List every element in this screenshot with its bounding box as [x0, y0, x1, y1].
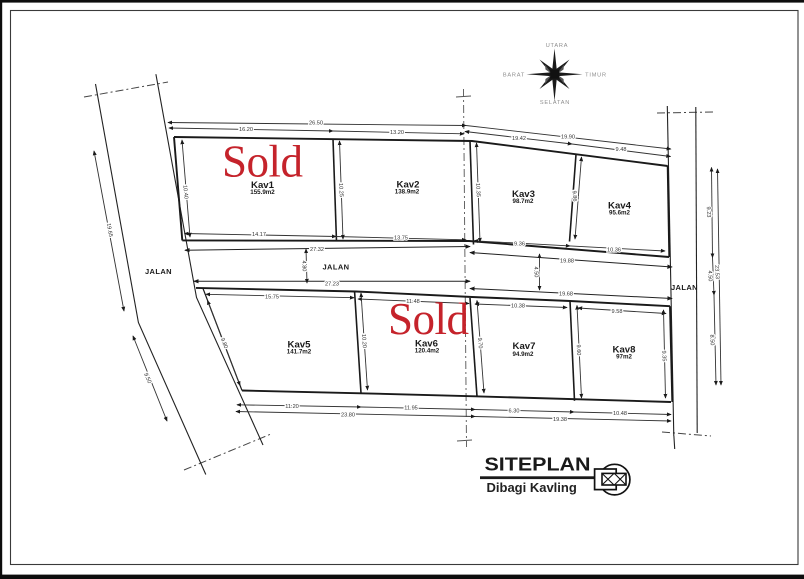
- svg-text:19.38: 19.38: [553, 417, 567, 423]
- svg-text:9.23: 9.23: [705, 206, 712, 217]
- svg-text:JALAN: JALAN: [322, 263, 349, 272]
- svg-text:9.36: 9.36: [514, 242, 525, 248]
- svg-text:120.4m2: 120.4m2: [415, 348, 440, 355]
- svg-text:9.35: 9.35: [660, 350, 666, 361]
- svg-text:10.48: 10.48: [613, 411, 627, 417]
- svg-text:13.20: 13.20: [390, 130, 404, 136]
- svg-text:19.88: 19.88: [560, 259, 574, 265]
- svg-text:141.7m2: 141.7m2: [287, 349, 312, 356]
- svg-text:10.25: 10.25: [337, 183, 344, 197]
- svg-text:Sold: Sold: [388, 294, 469, 344]
- svg-text:10.20: 10.20: [360, 334, 367, 348]
- svg-text:BARAT: BARAT: [503, 73, 525, 79]
- svg-text:4.50: 4.50: [532, 266, 539, 277]
- svg-text:9.60: 9.60: [575, 344, 582, 355]
- svg-text:JALAN: JALAN: [671, 283, 698, 292]
- svg-text:27.32: 27.32: [310, 247, 324, 253]
- svg-text:UTARA: UTARA: [546, 43, 569, 49]
- svg-text:9.70: 9.70: [476, 337, 483, 348]
- svg-text:9.86: 9.86: [571, 190, 578, 201]
- svg-text:11.20: 11.20: [285, 404, 299, 410]
- svg-text:15.75: 15.75: [265, 295, 279, 301]
- svg-text:97m2: 97m2: [616, 354, 632, 361]
- svg-text:10.38: 10.38: [511, 304, 525, 310]
- svg-text:Dibagi Kavling: Dibagi Kavling: [487, 480, 577, 495]
- svg-text:19.68: 19.68: [559, 292, 573, 298]
- svg-text:9.58: 9.58: [612, 309, 623, 315]
- svg-text:11.95: 11.95: [404, 406, 418, 412]
- svg-text:138.9m2: 138.9m2: [395, 188, 420, 195]
- svg-text:SITEPLAN: SITEPLAN: [485, 455, 591, 475]
- svg-text:8.50: 8.50: [708, 334, 715, 345]
- svg-text:27.23: 27.23: [325, 282, 339, 288]
- svg-text:Sold: Sold: [222, 137, 303, 187]
- svg-text:14.17: 14.17: [252, 232, 266, 238]
- svg-text:6.30: 6.30: [509, 409, 520, 415]
- svg-text:19.90: 19.90: [561, 135, 575, 141]
- svg-text:13.75: 13.75: [394, 236, 408, 242]
- svg-text:JALAN: JALAN: [145, 267, 172, 276]
- svg-text:TIMUR: TIMUR: [585, 73, 607, 79]
- svg-text:16.20: 16.20: [239, 127, 253, 133]
- svg-text:155.9m2: 155.9m2: [250, 189, 275, 196]
- svg-text:94.9m2: 94.9m2: [513, 351, 535, 358]
- svg-text:95.6m2: 95.6m2: [609, 210, 631, 217]
- svg-text:4.50: 4.50: [706, 270, 713, 281]
- svg-text:98.7m2: 98.7m2: [513, 198, 535, 205]
- svg-text:26.50: 26.50: [309, 121, 323, 127]
- svg-text:10.36: 10.36: [607, 247, 621, 253]
- svg-text:4.80: 4.80: [300, 260, 307, 271]
- svg-text:19.42: 19.42: [512, 136, 526, 142]
- svg-text:23.80: 23.80: [341, 413, 355, 419]
- svg-text:10.40: 10.40: [181, 185, 188, 199]
- svg-text:SELATAN: SELATAN: [540, 100, 570, 106]
- svg-text:23.53: 23.53: [713, 265, 720, 279]
- svg-text:9.48: 9.48: [616, 147, 627, 153]
- svg-text:10.35: 10.35: [474, 183, 481, 197]
